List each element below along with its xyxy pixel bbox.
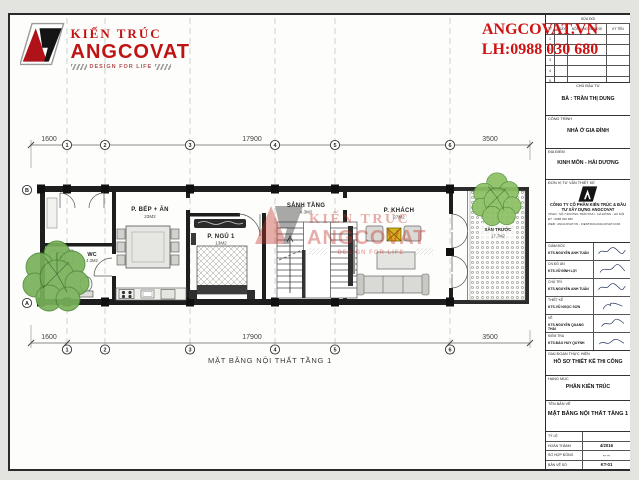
svg-text:5: 5 — [333, 143, 336, 149]
svg-text:B: B — [25, 188, 29, 194]
svg-text:1: 1 — [65, 348, 68, 354]
client-label: CHỦ ĐẦU TƯ — [546, 83, 630, 88]
meta-label: BẢN VẼ SỐ — [546, 461, 583, 470]
signature-icon — [597, 245, 627, 258]
sig-role: KIỂM TRA — [548, 334, 592, 338]
project-name: NHÀ Ở GIA ĐÌNH — [546, 128, 630, 134]
svg-text:P. NGỦ 1: P. NGỦ 1 — [207, 233, 235, 240]
contact-phone: LH:0988 030 680 — [455, 40, 625, 60]
company-name: CÔNG TY CỔ PHẦN KIẾN TRÚC & ĐẦU TƯ XÂY D… — [546, 202, 630, 212]
signature-icon — [597, 263, 627, 276]
location-label: ĐỊA ĐIỂM — [546, 149, 630, 154]
phase-section: GIAI ĐOẠN THỰC HIỆN HỒ SƠ THIẾT KẾ THI C… — [546, 351, 630, 376]
dim-top-left: 1600 — [41, 136, 57, 143]
sig-role: VẼ — [548, 316, 592, 320]
svg-text:17.7M2: 17.7M2 — [491, 234, 506, 239]
project-section: CÔNG TRÌNH NHÀ Ở GIA ĐÌNH — [546, 116, 630, 149]
svg-text:A: A — [25, 301, 29, 307]
meta-section: TỶ LỆ HOÀN THÀNH4/2016 SỐ HỢP ĐỒNG-- -- … — [546, 432, 630, 469]
svg-text:3: 3 — [188, 143, 191, 149]
dim-top-right: 3500 — [482, 136, 498, 143]
signature-row: CN ĐỒ ÁNKTS.VŨ ĐÌNH LỢI — [546, 261, 630, 279]
floorplan-sheet-page: { "brand": {"title": "KIẾN TRÚC", "name"… — [0, 0, 639, 480]
brand-tagline: DESIGN FOR LIFE — [90, 64, 153, 70]
front-doors — [452, 191, 468, 300]
drawing-name-section: TÊN BẢN VẼ MẶT BẰNG NỘI THẤT TẦNG 1 — [546, 401, 630, 432]
consultant-label: ĐƠN VỊ TƯ VẤN THIẾT KẾ — [546, 180, 630, 185]
svg-text:1: 1 — [65, 143, 68, 149]
meta-label: TỶ LỆ — [546, 432, 583, 441]
axis-bubbles-bottom: 1 2 3 4 5 6 — [62, 345, 454, 354]
brand-name: ANGCOVAT — [71, 42, 190, 62]
meta-label: HOÀN THÀNH — [546, 442, 583, 451]
svg-text:23M2: 23M2 — [144, 214, 156, 219]
signature-row: CHỦ TRÌKTS.NGUYỄN ANH TUẤN — [546, 279, 630, 297]
sig-name: KTS.ĐÀO HUY QUỲNH — [548, 341, 592, 345]
revision-row-num: 4 — [546, 66, 555, 77]
dim-top-mid: 17900 — [242, 136, 262, 143]
consultant-section: ĐƠN VỊ TƯ VẤN THIẾT KẾ CÔNG TY CỔ PHẦN K… — [546, 180, 630, 243]
category-label: HẠNG MỤC — [546, 376, 630, 381]
sig-name: KTS.VŨ ĐÌNH LỢI — [548, 269, 592, 273]
tagline-hatch-left — [71, 64, 87, 70]
brand-title: KIẾN TRÚC — [71, 26, 190, 42]
sig-role: CN ĐỒ ÁN — [548, 262, 592, 266]
svg-text:3: 3 — [188, 348, 191, 354]
company-logo-icon — [578, 186, 598, 202]
phase-value: HỒ SƠ THIẾT KẾ THI CÔNG — [546, 359, 630, 365]
kitchen-dining — [116, 226, 186, 300]
angcovat-logo-icon — [20, 20, 65, 68]
svg-text:4.3M2: 4.3M2 — [86, 258, 98, 263]
signature-section: GIÁM ĐỐCKTS.NGUYỄN ANH TUẤN CN ĐỒ ÁNKTS.… — [546, 243, 630, 351]
drawing-name-label: TÊN BẢN VẼ — [546, 401, 630, 406]
sig-name: KTS.NGUYỄN QUANG THÁI — [548, 323, 592, 331]
meta-value: KT-01 — [583, 462, 630, 467]
dim-bottom-left: 1600 — [41, 334, 57, 341]
title-block: SỬA ĐỔI TT NGÀY NỘI DUNG SỬA ĐỔI KÝ TÊN … — [545, 15, 630, 469]
company-line: WEB : ANGCOVAT.VN - KIENTRUCANGCOVAT.COM — [546, 222, 630, 227]
signature-icon — [597, 299, 627, 312]
bottom-dimension-line: 1600 17900 3500 1 2 3 4 5 6 — [28, 325, 533, 354]
meta-label: SỐ HỢP ĐỒNG — [546, 451, 583, 460]
signature-row: THIẾT KẾKTS.VŨ NGỌC SƠN — [546, 297, 630, 315]
sig-name: KTS.VŨ NGỌC SƠN — [548, 305, 592, 309]
svg-text:2: 2 — [103, 348, 106, 354]
client-section: CHỦ ĐẦU TƯ BÀ : TRẦN THỊ DUNG — [546, 83, 630, 116]
location-name: KINH MÔN - HẢI DƯƠNG — [546, 160, 630, 166]
signature-row: VẼKTS.NGUYỄN QUANG THÁI — [546, 315, 630, 333]
tree-left-icon — [23, 241, 89, 311]
signature-row: KIỂM TRAKTS.ĐÀO HUY QUỲNH — [546, 333, 630, 351]
svg-text:KIẾN TRÚC: KIẾN TRÚC — [309, 210, 410, 227]
sig-role: THIẾT KẾ — [548, 298, 592, 302]
signature-icon — [597, 336, 627, 349]
client-name: BÀ : TRẦN THỊ DUNG — [546, 96, 630, 102]
svg-text:6: 6 — [448, 143, 451, 149]
meta-value: -- -- — [583, 453, 630, 458]
sig-name: KTS.NGUYỄN ANH TUẤN — [548, 287, 592, 291]
svg-text:P. BẾP + ĂN: P. BẾP + ĂN — [131, 206, 169, 213]
tagline-hatch-right — [155, 64, 171, 70]
location-section: ĐỊA ĐIỂM KINH MÔN - HẢI DƯƠNG — [546, 149, 630, 180]
signature-row: GIÁM ĐỐCKTS.NGUYỄN ANH TUẤN — [546, 243, 630, 261]
dim-bottom-mid: 17900 — [242, 334, 262, 341]
plan-caption: MẶT BẰNG NỘI THẤT TẦNG 1 — [208, 355, 332, 365]
svg-text:2: 2 — [103, 143, 106, 149]
contact-website: ANGCOVAT.VN — [455, 20, 625, 40]
category-value: PHẦN KIẾN TRÚC — [546, 384, 630, 390]
dim-bottom-right: 3500 — [482, 334, 498, 341]
category-section: HẠNG MỤC PHẦN KIẾN TRÚC — [546, 376, 630, 401]
contact-overlay: ANGCOVAT.VN LH:0988 030 680 — [455, 20, 625, 60]
top-dimension-line: 1600 17900 3500 1 2 3 4 5 6 — [28, 136, 533, 168]
svg-text:13M2: 13M2 — [215, 241, 227, 246]
project-label: CÔNG TRÌNH — [546, 116, 630, 121]
phase-label: GIAI ĐOẠN THỰC HIỆN — [546, 351, 630, 356]
svg-text:6: 6 — [448, 348, 451, 354]
signature-icon — [597, 317, 627, 330]
svg-text:ANGCOVAT: ANGCOVAT — [307, 227, 426, 249]
svg-text:SÂN TRƯỚC: SÂN TRƯỚC — [485, 227, 513, 232]
sig-role: GIÁM ĐỐC — [548, 244, 592, 248]
bedroom-furniture — [189, 214, 260, 299]
entry-doors — [47, 193, 104, 228]
sig-role: CHỦ TRÌ — [548, 280, 592, 284]
drawing-name-value: MẶT BẰNG NỘI THẤT TẦNG 1 — [546, 411, 630, 417]
brand-logo: KIẾN TRÚC ANGCOVAT DESIGN FOR LIFE — [20, 20, 190, 76]
sig-name: KTS.NGUYỄN ANH TUẤN — [548, 251, 592, 255]
meta-value: 4/2016 — [583, 443, 630, 448]
svg-text:DESIGN FOR LIFE: DESIGN FOR LIFE — [337, 250, 404, 256]
signature-icon — [597, 281, 627, 294]
svg-text:5: 5 — [333, 348, 336, 354]
